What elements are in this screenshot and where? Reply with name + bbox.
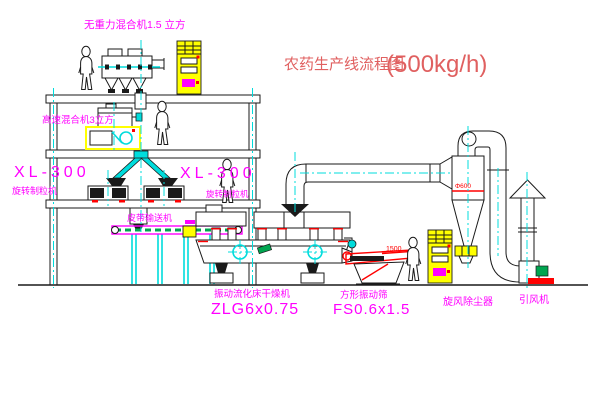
label-granulator-left-name: 旋转制粒机: [12, 185, 57, 196]
gravity-free-mixer: [98, 49, 164, 93]
elbow-flange: [462, 132, 476, 146]
label-granulator-right-model: XL-300: [180, 165, 256, 182]
label-sieve-model: FS0.6x1.5: [333, 301, 410, 318]
dimension-cyclone: Φ600: [455, 183, 471, 190]
label-dryer-model: ZLG6x0.75: [211, 301, 299, 318]
label-dryer-name: 振动流化床干燥机: [214, 288, 291, 300]
exhaust-duct: [286, 164, 440, 204]
floor-slab-mid: [46, 150, 260, 158]
label-gravity-mixer: 无重力混合机1.5 立方: [84, 18, 186, 31]
process-flow-diagram: 无重力混合机1.5 立方 高速混合机3立方 XL-300 旋转制粒机 XL-30…: [0, 0, 600, 403]
cyclone-rotary-valve: [455, 246, 477, 256]
fan-base: [528, 278, 554, 284]
control-cabinet-right: [428, 230, 452, 283]
human-figure-top-floor: [79, 46, 94, 89]
control-cabinet-top: [177, 41, 201, 94]
label-belt-conveyor: 皮带输送机: [127, 212, 172, 223]
ball-valve: [348, 240, 356, 248]
label-fan: 引风机: [519, 293, 549, 306]
fluid-bed-dryer: [183, 204, 352, 283]
induced-draft-fan: [519, 261, 554, 284]
dimension-1500: 1500: [386, 246, 402, 253]
human-figure-mid-floor: [155, 101, 170, 144]
label-high-speed-mixer: 高速混合机3立方: [42, 114, 114, 126]
label-granulator-left-model: XL-300: [14, 164, 90, 181]
square-vibrating-sieve: [344, 238, 412, 284]
floor-slab-top: [46, 95, 260, 103]
label-granulator-right-name: 旋转制粒机: [206, 189, 249, 199]
human-figure-sieve: [406, 237, 421, 280]
label-cyclone: 旋风除尘器: [443, 295, 493, 308]
fan-motor: [536, 266, 548, 276]
label-sieve-name: 方形振动筛: [340, 289, 388, 301]
page-title-capacity: (500kg/h): [386, 51, 487, 78]
